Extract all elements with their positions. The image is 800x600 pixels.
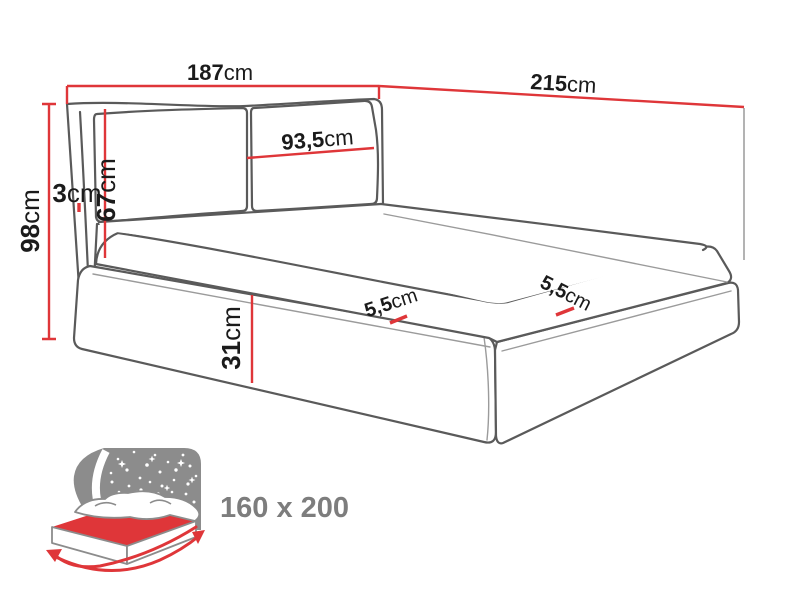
bed-dimension-diagram: 187cm 215cm 98cm 67cm 3cm 93,5cm 31cm 5,… [0, 0, 800, 600]
dim-label-base-height: 31cm [216, 306, 246, 370]
size-label: 160 x 200 [220, 492, 349, 524]
bed-size-icon [46, 448, 205, 571]
dim-label-wing-depth: 3cm [52, 178, 101, 208]
dim-label-total-width: 187cm [187, 60, 253, 85]
diagram-svg: 187cm 215cm 98cm 67cm 3cm 93,5cm 31cm 5,… [0, 0, 800, 600]
dim-label-total-length: 215cm [530, 69, 597, 98]
dim-label-total-height: 98cm [15, 189, 45, 253]
bed-drawing [67, 99, 739, 443]
